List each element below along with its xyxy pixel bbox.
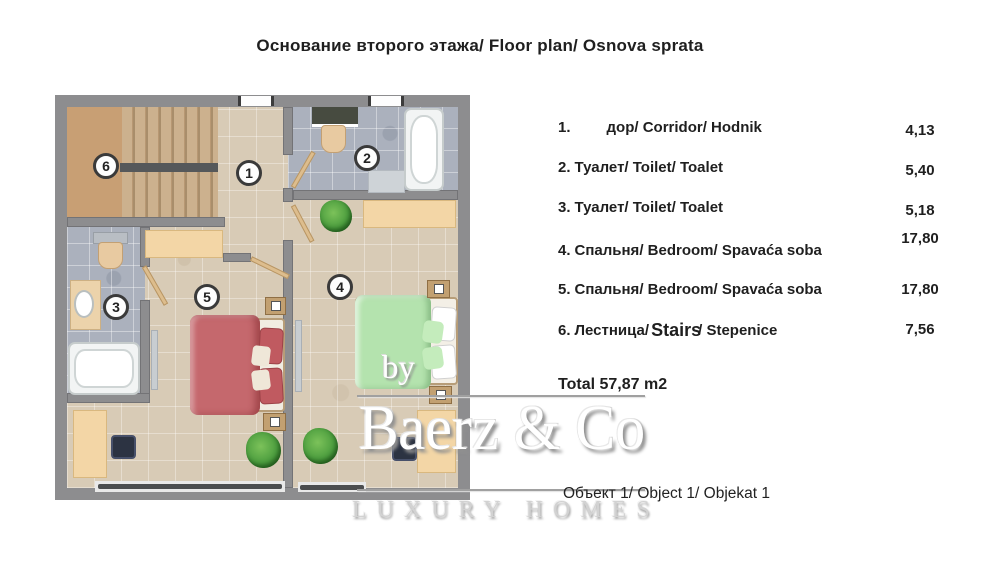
window-top-left-icon [238, 96, 274, 106]
legend-row-stairs: 6.Лестница/Stairs/ Stepenice [558, 319, 777, 340]
room-badge-5: 5 [194, 284, 220, 310]
shower-tray-icon [368, 170, 405, 193]
bathtub-toilet2-icon [404, 108, 444, 191]
legend-row-bedroom5: 5.Спальня/ Bedroom/ Spavaća soba [558, 281, 822, 298]
legend-value-toilet2: 5,40 [880, 162, 960, 179]
wall-central-top [283, 107, 293, 155]
legend-label-stairs: Stairs [651, 320, 701, 340]
desk-bedroom5-icon [73, 410, 107, 478]
sink-counter-toilet2-icon [312, 107, 358, 127]
wall-under-stairs [67, 217, 225, 227]
nightstand-icon [427, 280, 450, 298]
wardrobe-bedroom4-icon [363, 200, 456, 228]
room-badge-4: 4 [327, 274, 353, 300]
bathtub-toilet3-icon [68, 342, 140, 395]
legend-row-corridor: 1.дор/ Corridor/ Hodnik [558, 119, 762, 136]
legend-label: дор/ Corridor/ Hodnik [607, 119, 762, 136]
total-area: Total 57,87 m2 [558, 376, 667, 394]
radiator-bedroom4-icon [295, 320, 302, 392]
bed-green-cushion [422, 320, 445, 345]
legend-row-toilet3: 3.Туалет/ Toilet/ Toalet [558, 199, 723, 216]
bed-red-icon [190, 318, 285, 412]
bed-green-blanket [355, 295, 431, 389]
legend-value-bedroom4: 17,80 [880, 230, 960, 247]
legend-value-corridor: 4,13 [880, 122, 960, 139]
toilet3-basin-icon [74, 290, 94, 318]
plant-bedroom4-top-icon [320, 200, 352, 232]
page-title: Основание второго этажа/ Floor plan/ Osn… [0, 36, 960, 56]
toilet3-toilet-icon [98, 242, 123, 269]
legend-value-bedroom5: 17,80 [880, 281, 960, 298]
bed-green-cushion [422, 346, 445, 371]
toilet2-toilet-icon [321, 125, 346, 153]
room-badge-2: 2 [354, 145, 380, 171]
legend-label: Лестница/ [575, 322, 650, 339]
legend-label: Туалет/ Toilet/ Toalet [575, 159, 724, 176]
radiator-bedroom5-icon [151, 330, 158, 390]
stairs-steps-icon [122, 107, 218, 217]
bed-red-cushion [251, 369, 271, 391]
desk-bedroom4-icon [417, 410, 456, 473]
legend-value-stairs: 7,56 [880, 321, 960, 338]
legend-value-toilet3: 5,18 [880, 202, 960, 219]
wall-toilet3-lower [140, 300, 150, 403]
room-badge-6: 6 [93, 153, 119, 179]
toilet3-sink-counter-icon [70, 280, 101, 330]
legend-label: Туалет/ Toilet/ Toalet [575, 199, 724, 216]
nightstand-icon [429, 386, 452, 404]
legend-num: 5. [558, 281, 571, 298]
legend-label: Спальня/ Bedroom/ Spavaća soba [575, 281, 822, 298]
legend-label-end: / Stepenice [698, 322, 777, 339]
window-bottom-left-icon [98, 484, 282, 489]
bed-green-icon [355, 297, 458, 385]
stairs-room [67, 107, 218, 217]
legend-label: Спальня/ Bedroom/ Spavaća soba [575, 242, 822, 259]
legend-num: 3. [558, 199, 571, 216]
room-badge-1: 1 [236, 160, 262, 186]
room-badge-3: 3 [103, 294, 129, 320]
wall-corridor-bedroom5 [223, 253, 251, 262]
page: Основание второго этажа/ Floor plan/ Osn… [0, 0, 1000, 563]
nightstand-icon [263, 413, 286, 431]
legend-num: 1. [558, 119, 571, 136]
bed-red-cushion [251, 345, 271, 367]
nightstand-icon [265, 297, 286, 315]
window-bottom-right-icon [300, 485, 364, 490]
legend-num: 4. [558, 242, 571, 259]
bed-red-blanket [190, 315, 260, 415]
object-caption: Объект 1/ Object 1/ Objekat 1 [563, 485, 770, 503]
plant-bedroom4-bottom-icon [303, 428, 338, 464]
legend-row-toilet2: 2.Туалет/ Toilet/ Toalet [558, 159, 723, 176]
plant-bedroom5-icon [246, 432, 281, 468]
legend-row-bedroom4: 4.Спальня/ Bedroom/ Spavaća soba [558, 242, 822, 259]
window-top-right-icon [368, 96, 404, 106]
floor-plan: 1 2 3 4 5 6 [55, 95, 470, 500]
legend-num: 2. [558, 159, 571, 176]
wall-central-stub [283, 188, 293, 202]
chair-bedroom5-icon [111, 435, 136, 459]
chair-bedroom4-icon [392, 437, 417, 461]
legend-num: 6. [558, 322, 571, 339]
stairs-handrail-icon [120, 163, 218, 172]
wardrobe-bedroom5-icon [145, 230, 223, 258]
